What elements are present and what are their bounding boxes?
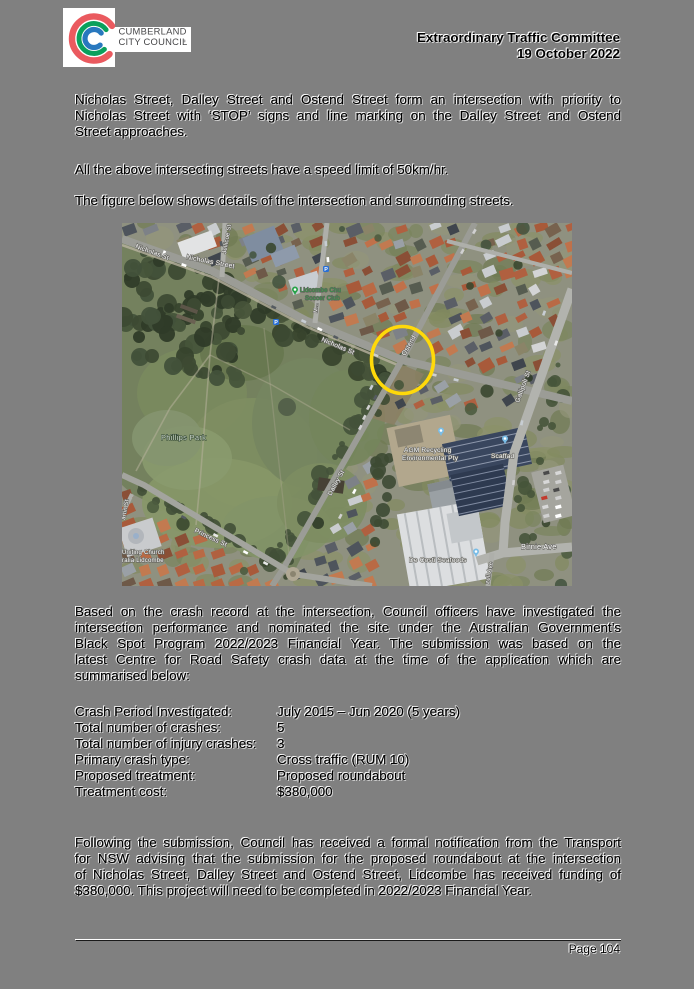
svg-text:Birnie Ave: Birnie Ave [521,542,557,551]
svg-text:Soccer Club: Soccer Club [305,296,340,302]
svg-text:P: P [274,320,278,326]
svg-text:De Costi Seafoods: De Costi Seafoods [409,557,467,564]
svg-text:Uniting Church: Uniting Church [122,550,165,556]
svg-text:AGM Recycling: AGM Recycling [404,447,452,454]
svg-text:P: P [324,267,328,273]
svg-text:CITY COUNCIL: CITY COUNCIL [119,36,188,47]
svg-text:Lidcombe Chu: Lidcombe Chu [300,288,341,294]
svg-text:®: ® [183,39,186,44]
svg-text:ralia Lidcombe: ralia Lidcombe [122,558,164,564]
svg-text:Phillips Park: Phillips Park [161,433,206,442]
svg-text:Scaffad: Scaffad [491,453,515,460]
svg-text:M...: M... [313,302,320,313]
svg-text:Environmental Pty: Environmental Pty [402,455,459,462]
